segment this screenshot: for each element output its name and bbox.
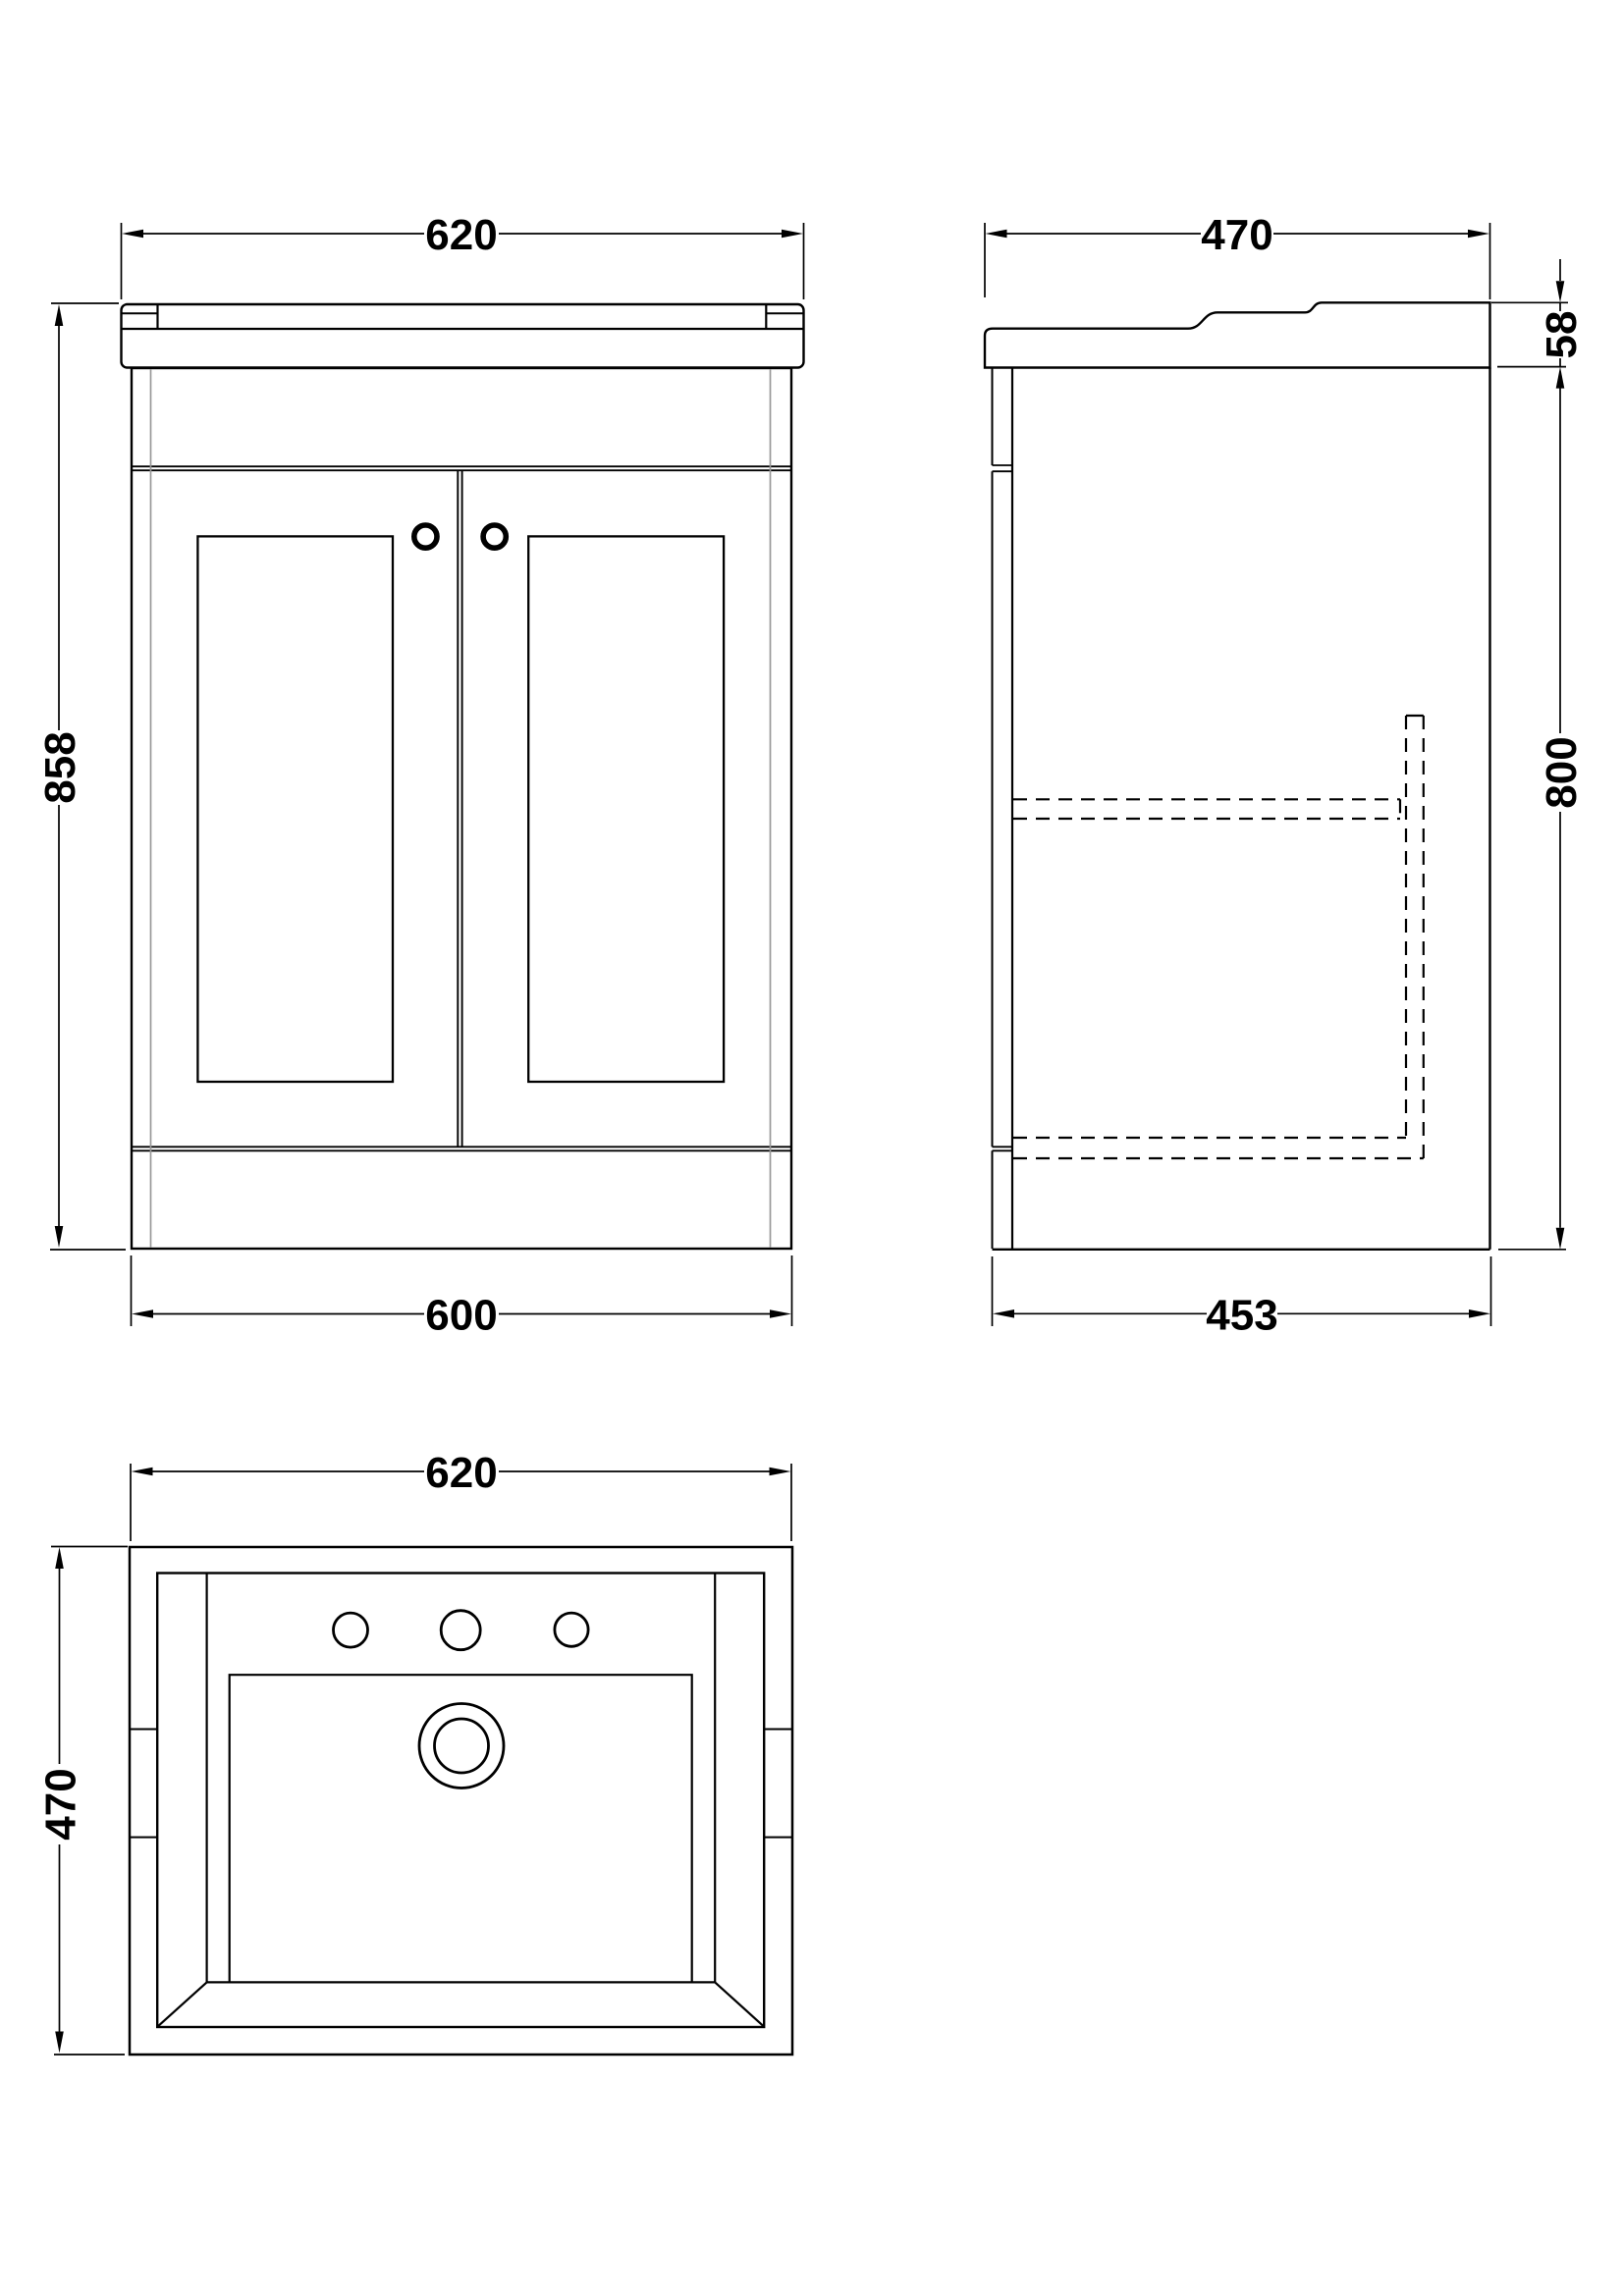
svg-text:800: 800 bbox=[1538, 736, 1586, 808]
svg-text:453: 453 bbox=[1206, 1291, 1277, 1339]
svg-text:58: 58 bbox=[1538, 311, 1586, 359]
svg-text:600: 600 bbox=[425, 1292, 497, 1340]
svg-text:620: 620 bbox=[425, 1449, 497, 1497]
svg-text:470: 470 bbox=[37, 1768, 85, 1840]
svg-text:620: 620 bbox=[425, 211, 497, 259]
svg-text:858: 858 bbox=[36, 731, 84, 803]
svg-text:470: 470 bbox=[1201, 211, 1272, 259]
